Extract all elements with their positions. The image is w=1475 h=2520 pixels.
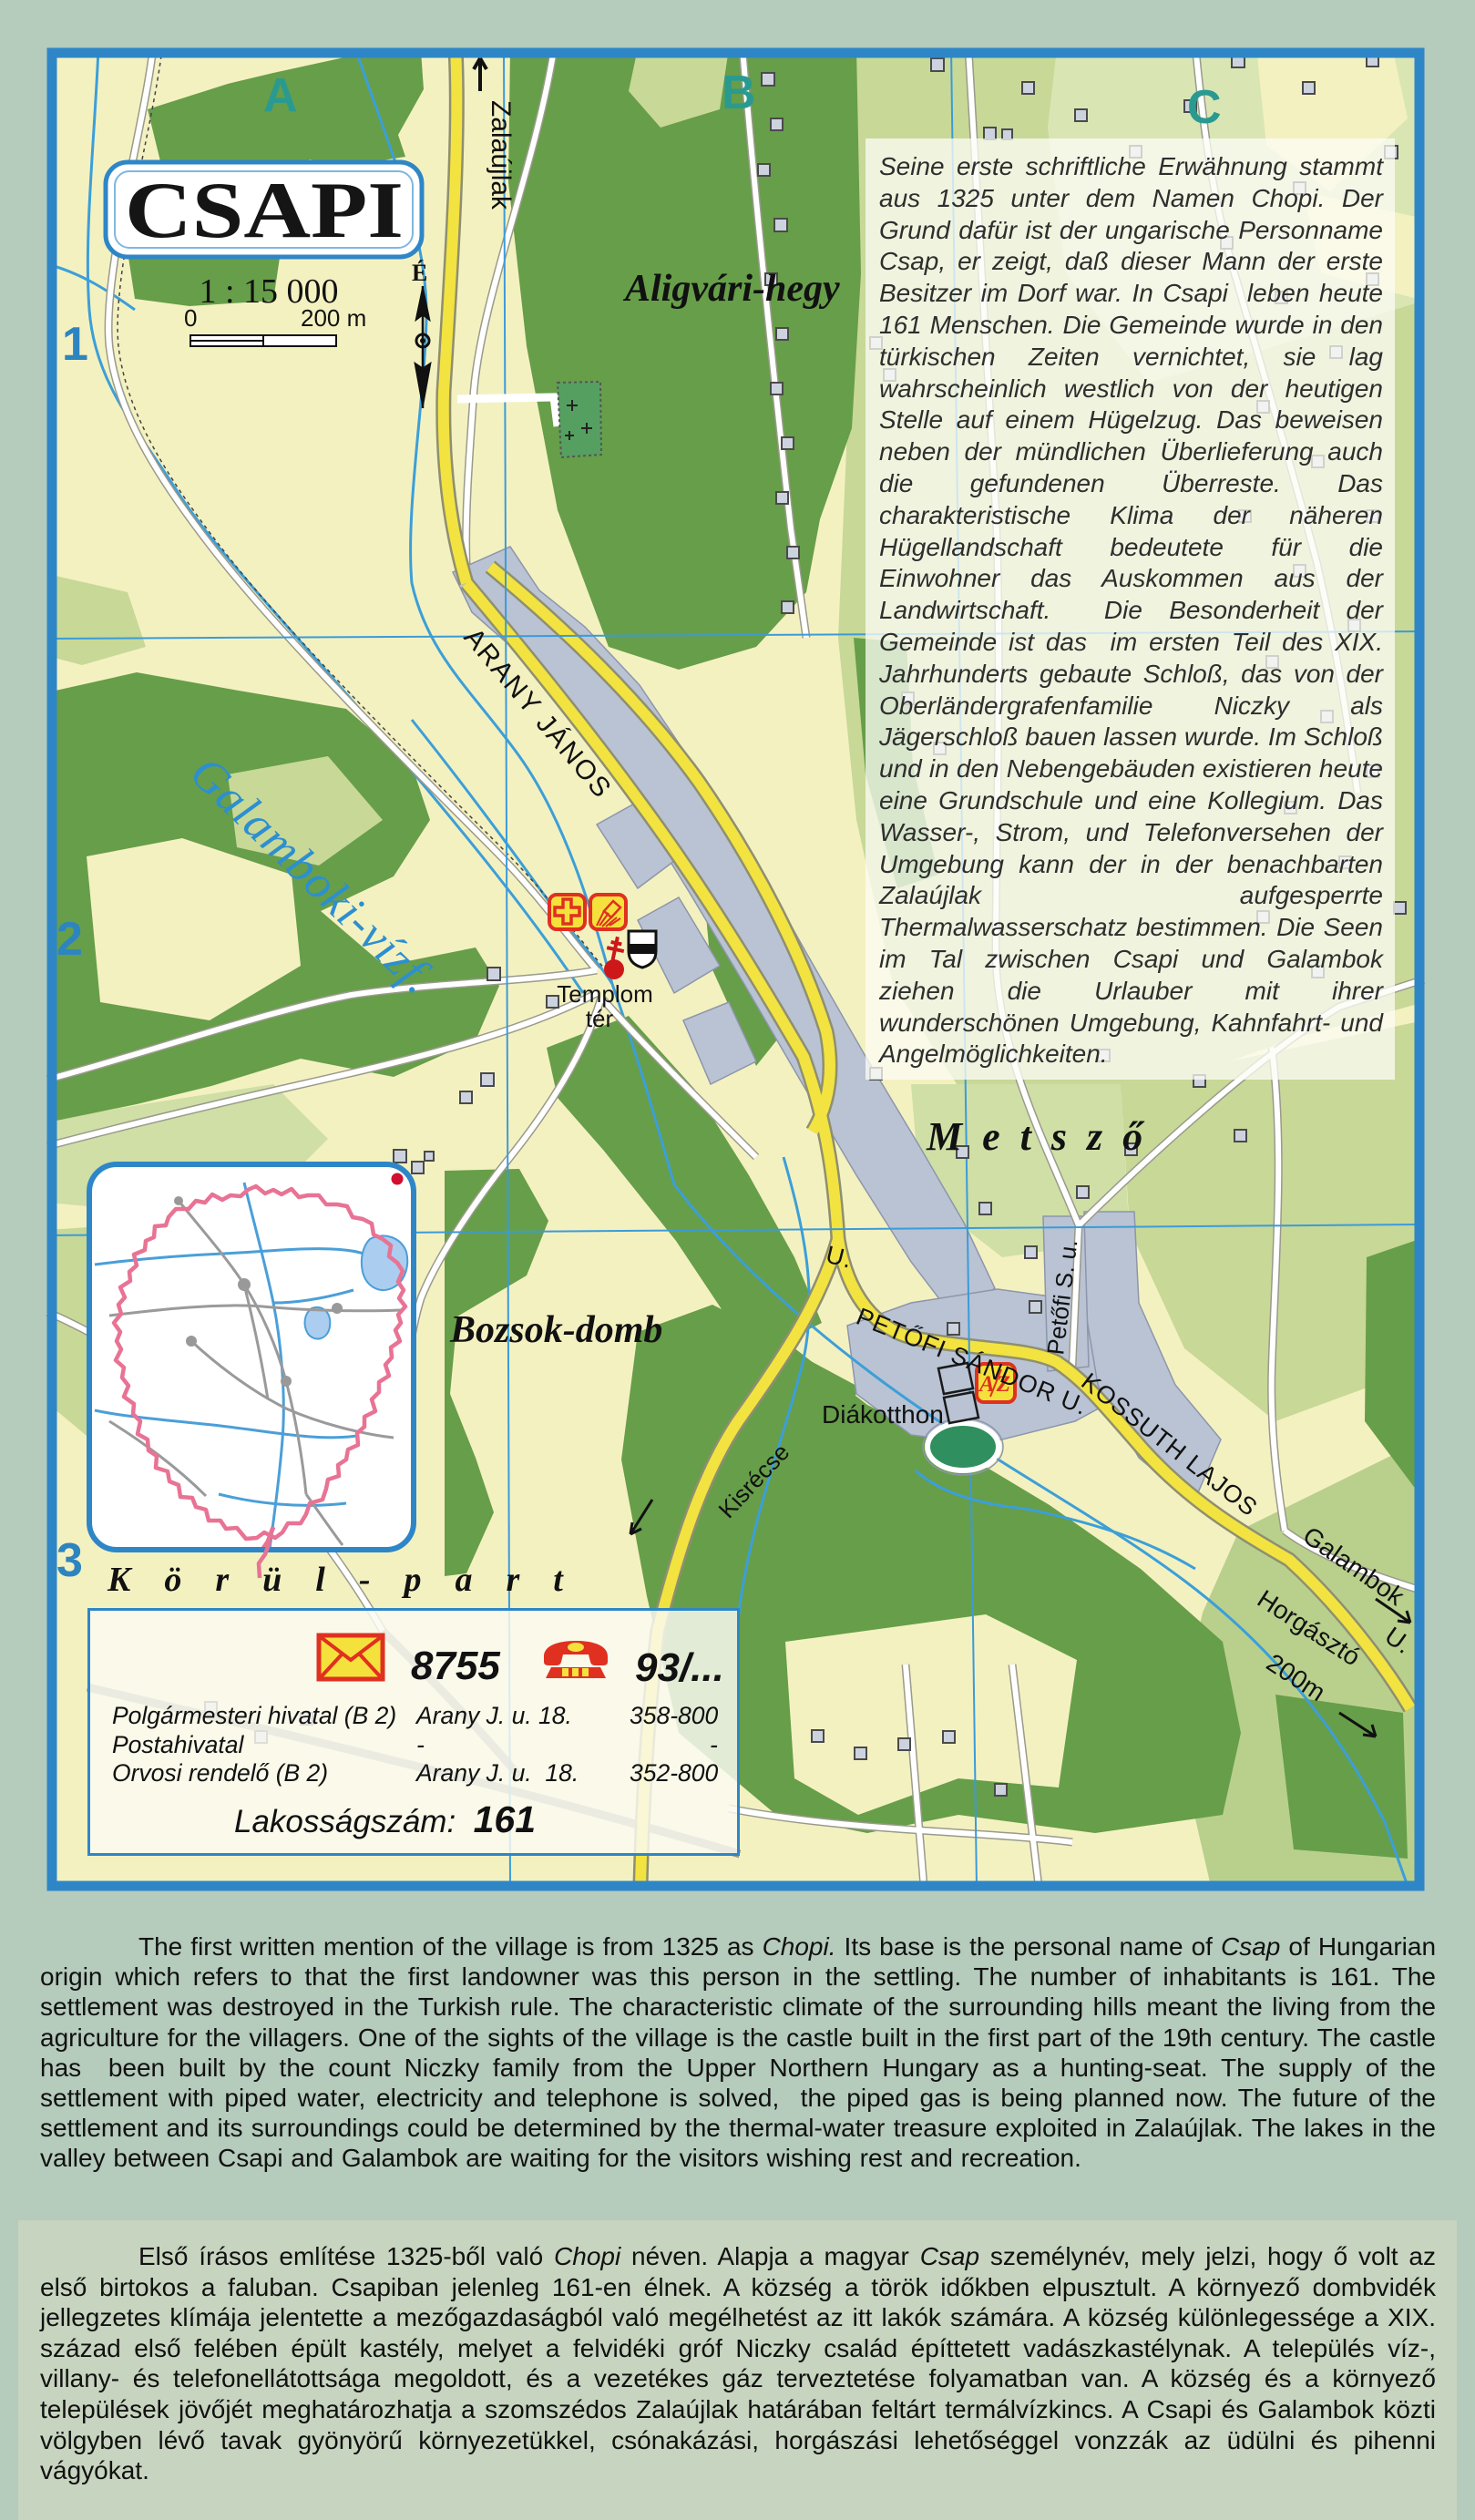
svg-text:CSAPI: CSAPI (125, 167, 404, 255)
svg-text:0: 0 (184, 304, 197, 332)
svg-text:Zalaújlak: Zalaújlak (486, 100, 516, 210)
svg-text:200 m: 200 m (301, 304, 366, 332)
svg-text:A: A (263, 69, 298, 122)
svg-text:É: É (412, 260, 427, 286)
svg-text:tér: tér (586, 1005, 614, 1032)
svg-text:Körül-part: Körül-part (107, 1561, 597, 1599)
svg-text:C: C (1187, 81, 1222, 134)
svg-text:Aligvári-hegy: Aligvári-hegy (622, 268, 840, 310)
svg-text:Diákotthon: Diákotthon (822, 1400, 944, 1429)
svg-text:Bozsok-domb: Bozsok-domb (449, 1309, 662, 1351)
svg-text:B: B (722, 67, 756, 119)
svg-text:1: 1 (62, 318, 88, 371)
svg-text:2: 2 (56, 913, 83, 966)
svg-text:Metsző: Metsző (926, 1114, 1163, 1159)
svg-text:3: 3 (56, 1534, 83, 1587)
svg-text:Templom: Templom (557, 980, 652, 1008)
